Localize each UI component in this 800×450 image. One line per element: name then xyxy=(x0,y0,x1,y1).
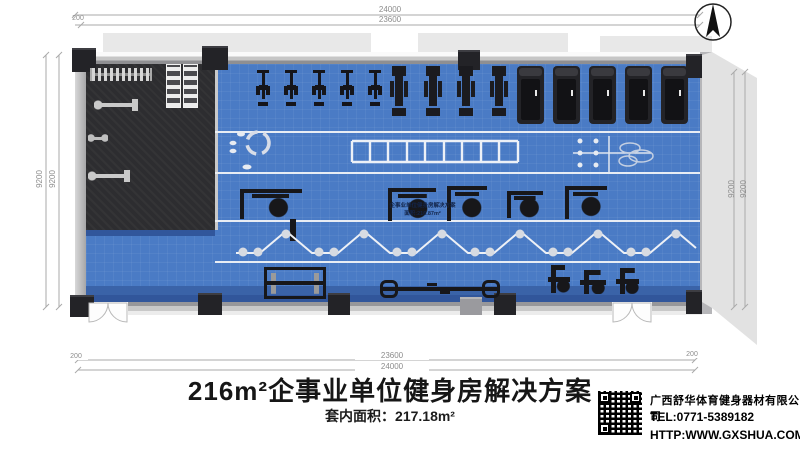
floor-label-line1: 企事业单位健身房解决方案 xyxy=(365,202,480,210)
elliptical-icon xyxy=(390,66,408,116)
qr-finder-icon xyxy=(599,392,610,403)
dim-offset-top-left: 200 xyxy=(68,15,88,22)
treadmill-icon xyxy=(517,66,544,124)
dim-left-outer: 9200 xyxy=(36,164,44,194)
elliptical-icon xyxy=(490,66,508,116)
bench-icon xyxy=(94,99,138,111)
dumbbell-icon xyxy=(88,133,108,143)
floor-label-line2: 面积:216.87m² xyxy=(365,210,480,218)
rack-icon xyxy=(264,267,326,299)
elliptical-icon xyxy=(424,66,442,116)
poster-title: 216m²企事业单位健身房解决方案 xyxy=(140,371,640,408)
dim-top-inner: 23600 xyxy=(340,16,440,24)
poster-subtitle: 套内面积：217.18m² xyxy=(190,406,590,426)
dumbbell-rack-icon xyxy=(166,64,181,108)
pole-icon xyxy=(290,219,296,241)
dim-bottom-inner: 23600 xyxy=(355,352,429,360)
machine-icon xyxy=(507,191,543,218)
treadmill-icon xyxy=(589,66,616,124)
bike-icon xyxy=(368,70,382,106)
dim-top-outer: 24000 xyxy=(340,6,440,14)
dim-left-inner: 9200 xyxy=(49,164,57,194)
company-tel: TEL:0771-5389182 xyxy=(650,410,800,424)
small-machine-icon xyxy=(548,265,570,293)
bike-icon xyxy=(340,70,354,106)
treadmill-icon xyxy=(625,66,652,124)
qr-finder-icon xyxy=(599,423,610,434)
bench-icon xyxy=(88,170,130,182)
bike-icon xyxy=(312,70,326,106)
small-machine-icon xyxy=(580,270,606,294)
small-machine-icon xyxy=(616,268,639,294)
bar-rack-icon xyxy=(382,280,498,298)
plate-rack-icon xyxy=(90,68,152,81)
dumbbell-rack-icon xyxy=(183,64,198,108)
floor-label: 企事业单位健身房解决方案 面积:216.87m² xyxy=(365,202,480,219)
qr-code xyxy=(598,391,642,435)
bike-icon xyxy=(284,70,298,106)
company-website: HTTP:WWW.GXSHUA.COM xyxy=(650,428,800,442)
dim-right-outer: 9200 xyxy=(740,174,748,204)
qr-finder-icon xyxy=(630,392,641,403)
bike-icon xyxy=(256,70,270,106)
dim-offset-bottom-left: 200 xyxy=(64,353,88,360)
machine-icon xyxy=(565,186,607,219)
machine-icon xyxy=(240,189,302,219)
gym-floorplan-poster: 企事业单位健身房解决方案 面积:216.87m² 24000 23600 200… xyxy=(0,0,800,450)
dim-offset-bottom-right: 200 xyxy=(680,351,704,358)
dim-bottom-outer: 24000 xyxy=(355,363,429,371)
treadmill-icon xyxy=(553,66,580,124)
dim-right-inner: 9200 xyxy=(728,174,736,204)
treadmill-icon xyxy=(661,66,688,124)
elliptical-icon xyxy=(457,66,475,116)
